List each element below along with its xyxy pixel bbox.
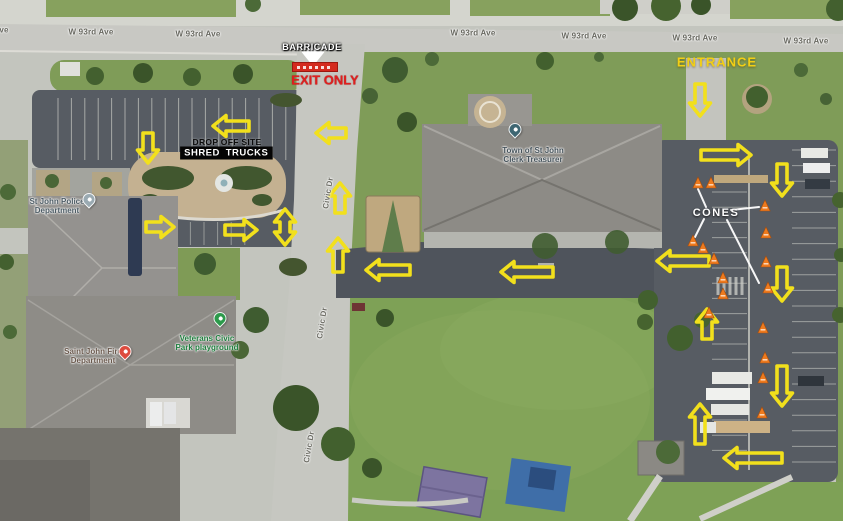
direction-arrow-down — [690, 84, 711, 116]
traffic-cone-icon — [760, 200, 770, 211]
direction-arrow-left — [213, 116, 249, 137]
traffic-cone-icon — [718, 272, 728, 283]
traffic-cone-icon — [688, 235, 698, 246]
direction-arrow-down — [772, 164, 793, 196]
annotations — [0, 0, 843, 521]
direction-arrow-updown — [275, 209, 296, 245]
direction-arrow-right — [225, 220, 257, 241]
barricade-marker — [292, 62, 338, 72]
traffic-cone-icon — [698, 242, 708, 253]
drop-off-site-label: DROP OFF SITE — [193, 137, 262, 147]
direction-arrow-left — [501, 262, 553, 283]
direction-arrow-up — [690, 404, 711, 444]
traffic-cone-icon — [706, 177, 716, 188]
traffic-cone-icon — [758, 322, 768, 333]
exit-only-label: EXIT ONLY — [291, 73, 358, 88]
entrance-label: ENTRANCE — [677, 55, 757, 70]
traffic-cone-icon — [718, 288, 728, 299]
site-map: veW 93rd AveW 93rd AveW 93rd AveW 93rd A… — [0, 0, 843, 521]
direction-arrow-down — [772, 366, 793, 406]
traffic-cone-icon — [758, 372, 768, 383]
direction-arrow-down — [772, 267, 793, 301]
traffic-cone-icon — [760, 352, 770, 363]
traffic-cone-icon — [761, 256, 771, 267]
direction-arrow-up — [330, 183, 351, 213]
shred-truck-label-right: TRUCKS — [222, 147, 273, 160]
direction-arrow-left — [316, 123, 346, 144]
direction-arrow-left — [366, 260, 410, 281]
direction-arrow-down — [138, 133, 159, 163]
shred-truck-label-left: SHRED — [180, 147, 224, 160]
direction-arrow-right — [146, 217, 174, 238]
cones-pointer-line — [727, 220, 759, 283]
barricade-label: BARRICADE — [282, 42, 341, 52]
traffic-cone-icon — [693, 177, 703, 188]
traffic-cone-icon — [761, 227, 771, 238]
barricade-stripes — [297, 66, 333, 69]
cones-pointer-line — [698, 189, 706, 207]
cones-pointer-line — [695, 219, 704, 237]
direction-arrow-left — [657, 251, 709, 272]
direction-arrow-up — [328, 238, 349, 272]
direction-arrow-left — [724, 448, 782, 469]
direction-arrow-right — [701, 145, 751, 166]
cones-label: CONES — [693, 207, 740, 219]
traffic-cone-icon — [757, 407, 767, 418]
